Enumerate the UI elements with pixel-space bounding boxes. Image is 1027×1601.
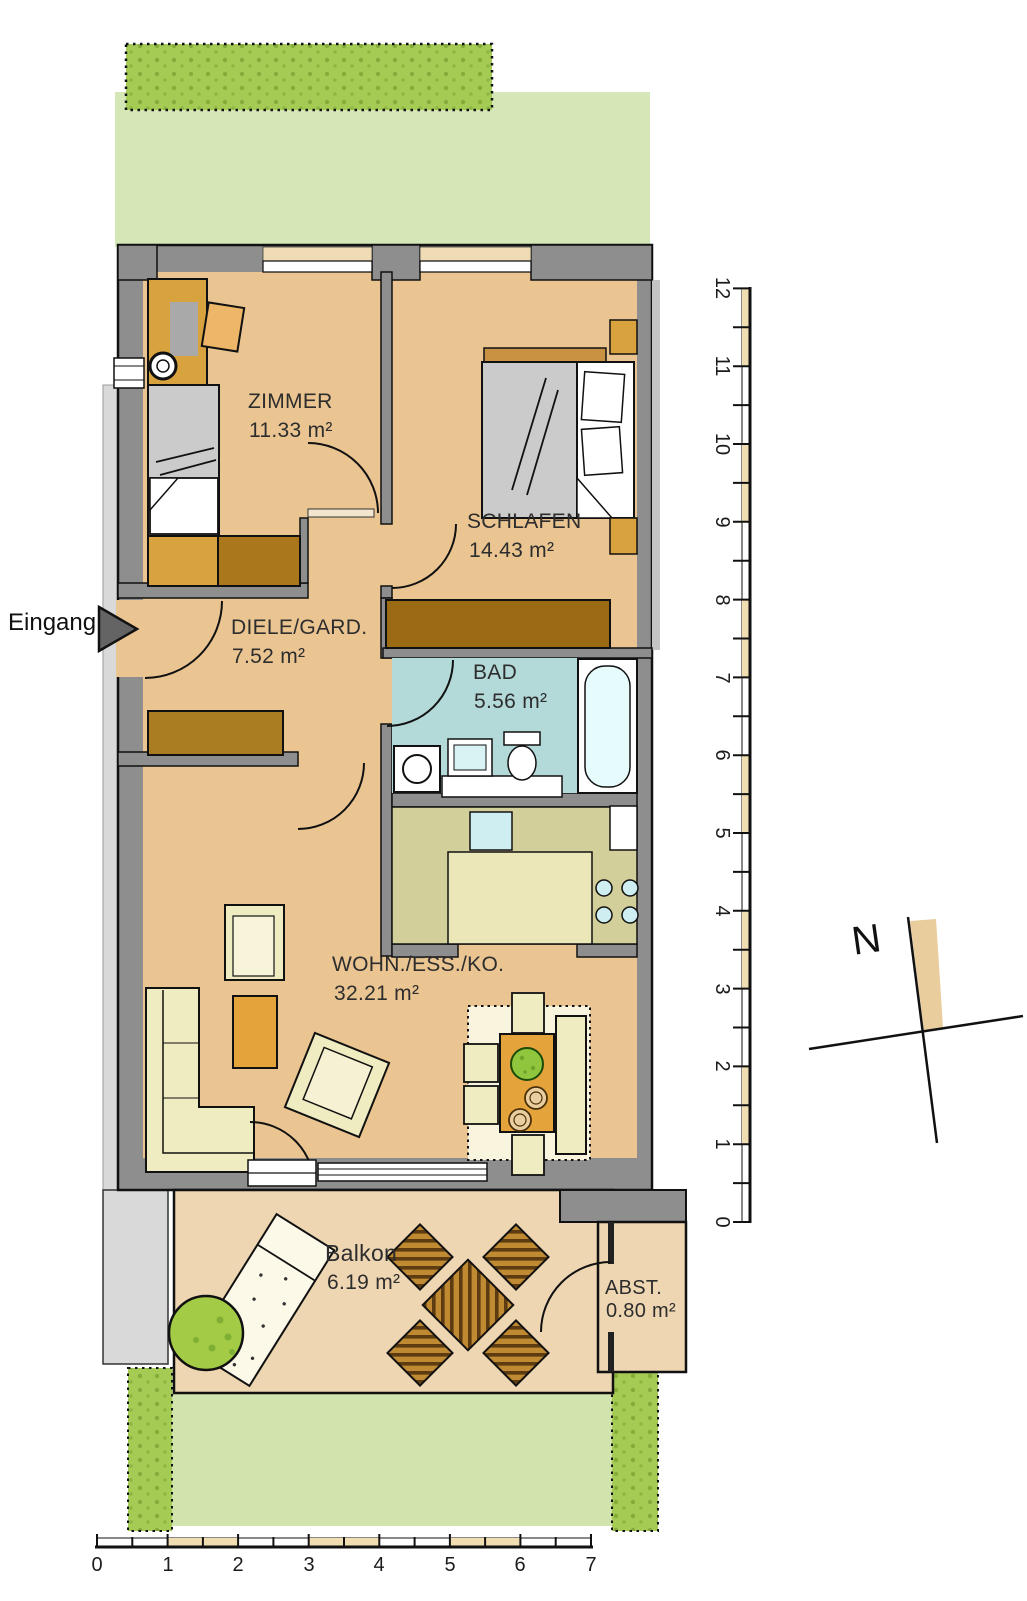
- diele-area-label: 7.52 m²: [232, 645, 305, 668]
- hedge-right: [612, 1372, 658, 1531]
- ruler-horizontal: [95, 1534, 593, 1547]
- ruler-vertical: [733, 287, 750, 1223]
- kitchen-floor: [448, 852, 592, 944]
- zimmer-area-label: 11.33 m²: [249, 419, 333, 442]
- wohn-area-label: 32.21 m²: [334, 982, 419, 1005]
- table-plant: [511, 1048, 543, 1080]
- patio-slab: [103, 1190, 168, 1364]
- exterior-wall-strip: [103, 385, 119, 1190]
- vruler-label-3: 3: [707, 973, 733, 1005]
- bathtub: [578, 659, 637, 793]
- vruler-label-9: 9: [707, 506, 733, 538]
- abst-area-label: 0.80 m²: [606, 1300, 676, 1322]
- schlafen-wardrobe: [386, 600, 610, 648]
- vruler-label-10: 10: [707, 428, 733, 460]
- kitchen-window-niche: [610, 806, 637, 850]
- bed-pillows: [577, 362, 634, 518]
- hruler-label-3: 3: [292, 1554, 326, 1578]
- kitchen-sink: [470, 812, 512, 850]
- window-zimmer: [263, 247, 372, 272]
- balkon-area-label: 6.19 m²: [327, 1271, 400, 1294]
- desk-lamp-inner: [157, 360, 169, 372]
- bad-area-label: 5.56 m²: [474, 690, 547, 713]
- window-schlafen: [420, 247, 531, 272]
- hruler-label-7: 7: [574, 1554, 608, 1578]
- abst-name-label: ABST.: [605, 1277, 662, 1299]
- entrance-label: Eingang: [8, 609, 96, 637]
- schlafen-name-label: SCHLAFEN: [467, 510, 581, 533]
- wohn-name-label: WOHN./ESS./KO.: [332, 953, 504, 976]
- floorplan-drawing: [0, 0, 1027, 1601]
- vruler-label-4: 4: [707, 895, 733, 927]
- bed-frame-top: [484, 348, 606, 362]
- vruler-label-8: 8: [707, 584, 733, 616]
- dining-bench: [556, 1016, 586, 1154]
- tv-cabinet: [225, 905, 284, 980]
- vruler-label-5: 5: [707, 817, 733, 849]
- window-left-wall: [114, 358, 144, 388]
- room-kitchen: [392, 806, 638, 944]
- schlafen-area-label: 14.43 m²: [469, 539, 554, 562]
- hedge-left: [128, 1368, 172, 1531]
- desk-monitor: [170, 302, 198, 356]
- diele-name-label: DIELE/GARD.: [231, 616, 367, 639]
- hruler-label-2: 2: [221, 1554, 255, 1578]
- hruler-label-4: 4: [362, 1554, 396, 1578]
- abst-top-wall: [560, 1190, 686, 1222]
- hruler-label-5: 5: [433, 1554, 467, 1578]
- wall-pillar-top: [372, 245, 420, 280]
- garden-top: [115, 44, 650, 247]
- hruler-label-6: 6: [503, 1554, 537, 1578]
- compass: [809, 917, 1023, 1143]
- abst-partition-top: [608, 1222, 614, 1264]
- wohn-window: [318, 1163, 487, 1181]
- compass-ew-line: [809, 1016, 1023, 1049]
- vruler-label-0: 0: [707, 1206, 733, 1238]
- vruler-label-2: 2: [707, 1050, 733, 1082]
- hedge-top: [126, 44, 492, 110]
- vruler-label-6: 6: [707, 739, 733, 771]
- abst-partition-bottom: [608, 1332, 614, 1372]
- vruler-label-12: 12: [707, 272, 733, 304]
- hruler-label-0: 0: [80, 1554, 114, 1578]
- compass-north-label: N: [849, 916, 884, 965]
- balcony-bush: [169, 1296, 243, 1370]
- vruler-label-11: 11: [707, 350, 733, 382]
- nightstand-bottom: [610, 518, 637, 554]
- single-bed: [148, 385, 219, 536]
- zimmer-name-label: ZIMMER: [248, 390, 333, 413]
- zimmer-door-threshold: [308, 509, 374, 517]
- washing-machine: [394, 746, 440, 792]
- wall-top-right: [531, 245, 652, 280]
- diele-wardrobe: [148, 711, 283, 755]
- coffee-table: [233, 996, 277, 1068]
- wall-corner-topleft: [118, 245, 157, 280]
- double-bed-duvet: [482, 362, 577, 518]
- vruler-label-1: 1: [707, 1128, 733, 1160]
- balkon-name-label: Balkon: [325, 1241, 397, 1266]
- zimmer-closet-right: [218, 536, 300, 586]
- nightstand-top: [610, 320, 637, 354]
- vruler-label-7: 7: [707, 662, 733, 694]
- zimmer-closet-left: [148, 536, 218, 586]
- bad-name-label: BAD: [473, 661, 517, 684]
- desk-chair: [202, 302, 244, 351]
- floorplan-page: ZIMMER 11.33 m² SCHLAFEN 14.43 m² DIELE/…: [0, 0, 1027, 1601]
- lawn-top: [115, 92, 650, 247]
- hruler-label-1: 1: [151, 1554, 185, 1578]
- outer-wall-face-right: [652, 280, 660, 650]
